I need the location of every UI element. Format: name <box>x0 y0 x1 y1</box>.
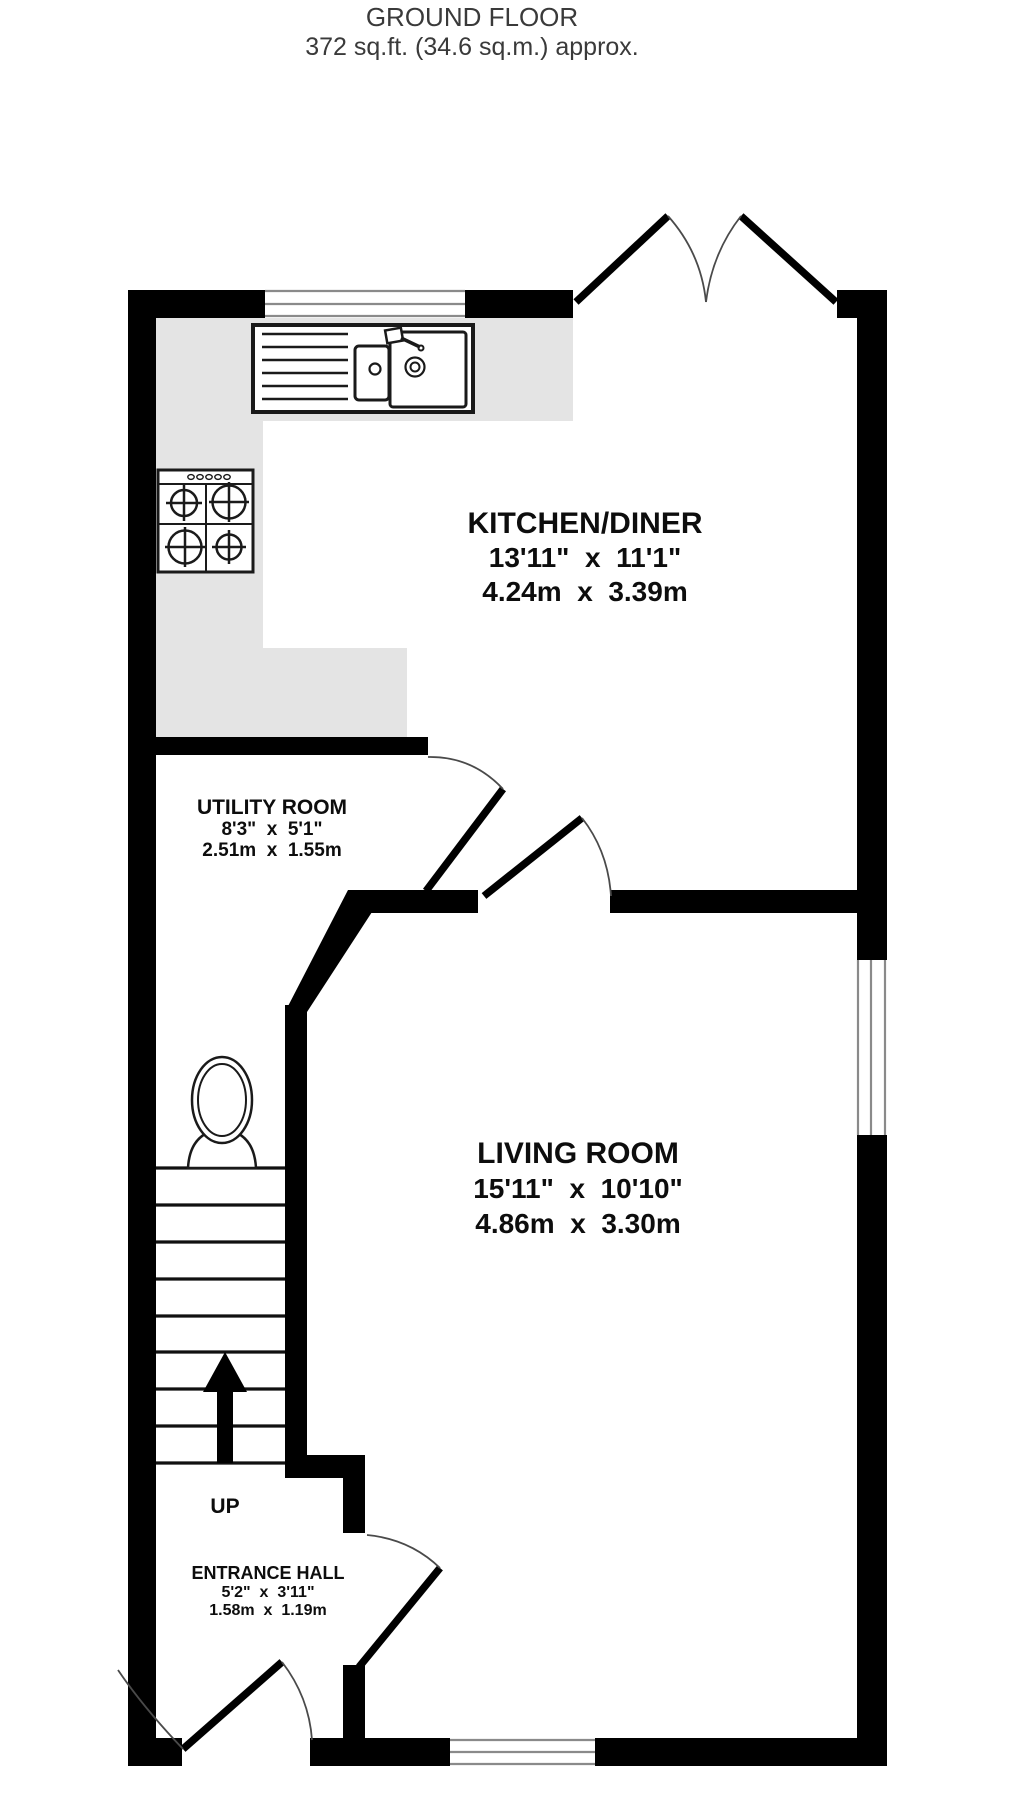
french-door-left-leaf <box>576 216 668 302</box>
wall-right-upper <box>857 290 887 960</box>
up-arrow-icon <box>203 1352 247 1463</box>
living-door-arc <box>582 818 611 896</box>
living-imperial: 15'11" x 10'10" <box>473 1173 683 1204</box>
window-right <box>858 960 885 1135</box>
wall-diagonal <box>285 890 372 1012</box>
wall-stair-bottom <box>285 1455 365 1478</box>
wall-bottom-a <box>128 1738 182 1766</box>
wall-top-b <box>465 290 573 318</box>
living-door-leaf <box>484 818 582 896</box>
window-top <box>265 291 465 316</box>
living-name: LIVING ROOM <box>477 1137 679 1170</box>
stairs-up-label: UP <box>210 1495 239 1518</box>
sink-icon <box>253 325 473 412</box>
wall-bottom-c <box>595 1738 887 1766</box>
french-door-right-leaf <box>741 216 836 302</box>
utility-door-arc <box>428 757 503 789</box>
kitchen-label: KITCHEN/DINER 13'11" x 11'1" 4.24m x 3.3… <box>467 507 702 607</box>
kitchen-name: KITCHEN/DINER <box>467 507 702 540</box>
hall-name: ENTRANCE HALL <box>192 1563 345 1583</box>
door-leaves <box>183 216 836 1749</box>
utility-door-leaf <box>426 789 503 891</box>
front-door-arc <box>282 1662 312 1740</box>
hob-icon <box>158 470 253 572</box>
wall-door-stub-upper <box>343 1478 365 1533</box>
utility-name: UTILITY ROOM <box>197 796 347 819</box>
floor-plan: GROUND FLOOR 372 sq.ft. (34.6 sq.m.) app… <box>0 0 1024 1808</box>
wall-utility-divider <box>156 737 428 755</box>
page-title: GROUND FLOOR <box>366 2 578 32</box>
utility-label: UTILITY ROOM 8'3" x 5'1" 2.51m x 1.55m <box>197 796 347 861</box>
kitchen-imperial: 13'11" x 11'1" <box>489 542 681 573</box>
living-label: LIVING ROOM 15'11" x 10'10" 4.86m x 3.30… <box>473 1137 683 1239</box>
wall-left <box>128 290 156 1766</box>
wall-living-divider-right <box>610 890 857 913</box>
wall-stair-side <box>285 1005 307 1478</box>
title-block: GROUND FLOOR 372 sq.ft. (34.6 sq.m.) app… <box>305 2 639 61</box>
living-metric: 4.86m x 3.30m <box>475 1208 680 1239</box>
hall-door-arc <box>367 1535 440 1568</box>
hall-label: ENTRANCE HALL 5'2" x 3'11" 1.58m x 1.19m <box>192 1563 345 1619</box>
kitchen-metric: 4.24m x 3.39m <box>482 576 687 607</box>
toilet-icon <box>188 1057 256 1168</box>
page-subtitle: 372 sq.ft. (34.6 sq.m.) approx. <box>305 33 639 61</box>
wall-bottom-b <box>310 1738 450 1766</box>
wall-door-stub-lower <box>343 1665 365 1738</box>
wall-top-a <box>128 290 265 318</box>
front-door-leaf <box>183 1662 282 1749</box>
utility-imperial: 8'3" x 5'1" <box>221 819 322 840</box>
hall-imperial: 5'2" x 3'11" <box>221 1584 314 1601</box>
hall-door-leaf <box>359 1568 440 1667</box>
utility-metric: 2.51m x 1.55m <box>202 840 341 861</box>
hall-metric: 1.58m x 1.19m <box>209 1602 326 1619</box>
french-door-left-arc <box>668 216 706 302</box>
floor-plan-page: GROUND FLOOR 372 sq.ft. (34.6 sq.m.) app… <box>0 0 1024 1808</box>
window-bottom <box>450 1740 595 1764</box>
wall-right-lower <box>857 1135 887 1766</box>
french-door-right-arc <box>706 216 741 302</box>
